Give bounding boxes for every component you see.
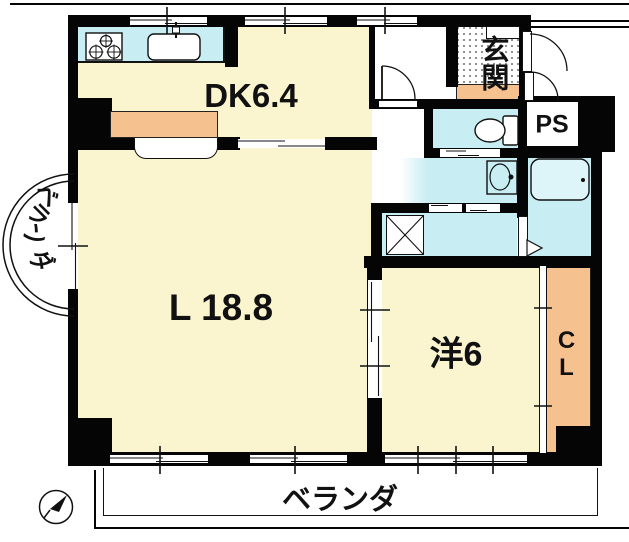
- washing-machine-box: [386, 215, 424, 255]
- room-label-ps: PS: [535, 111, 568, 140]
- window: [110, 455, 208, 463]
- door-arc-entrance: [530, 34, 567, 100]
- window: [130, 17, 207, 25]
- washroom-floor: [428, 158, 517, 205]
- bathroom-door-leaf: [518, 216, 528, 257]
- door-opening: [379, 100, 417, 108]
- balcony-outer-line: [94, 527, 629, 529]
- entrance-door-leaf: [522, 31, 532, 72]
- wall: [369, 24, 375, 102]
- window: [245, 17, 327, 25]
- wall: [371, 203, 382, 263]
- window: [385, 455, 527, 463]
- washroom-doorway-gradient: [400, 158, 428, 205]
- corridor-line: [527, 20, 629, 22]
- sliding-door-opening: [440, 149, 500, 157]
- room-label-entrance: 玄関: [479, 35, 508, 91]
- wall: [364, 256, 602, 268]
- balcony-outer-line: [94, 470, 96, 529]
- window: [68, 203, 78, 289]
- pillar: [68, 418, 112, 462]
- kitchen-counter-orange: [110, 111, 218, 138]
- room-label-closet: CL: [554, 327, 578, 381]
- pillar: [556, 426, 602, 466]
- building-edge-line: [10, 3, 629, 5]
- window: [250, 455, 347, 463]
- balcony-left-label: ベランダ: [20, 184, 58, 274]
- compass-north-icon: [40, 491, 73, 524]
- window: [357, 17, 417, 25]
- sliding-opening: [238, 139, 325, 148]
- room-label-living: L 18.8: [169, 287, 273, 329]
- toilet-room-floor: [432, 107, 519, 148]
- corridor-line: [527, 26, 629, 28]
- room-label-western: 洋6: [430, 327, 483, 376]
- bathroom-floor: [528, 158, 591, 258]
- balcony-bottom-label: ベランダ: [282, 476, 398, 518]
- sliding-door-opening: [368, 280, 382, 398]
- sliding-door-opening: [429, 204, 462, 212]
- room-label-dk: DK6.4: [204, 77, 298, 115]
- wall: [517, 150, 528, 218]
- entrance-door-leaf: [524, 72, 534, 101]
- counter-pass-through: [134, 136, 218, 159]
- wall: [446, 15, 458, 87]
- floorplan-canvas: DK6.4 L 18.8 洋6 PS CL 玄関 ベランダ ベランダ: [0, 0, 629, 542]
- door-arc-hall: [382, 66, 415, 99]
- closet-sliding-door: [539, 266, 547, 453]
- kitchen-counter: [78, 27, 225, 63]
- wall: [325, 137, 377, 150]
- wall: [225, 20, 238, 67]
- wall: [591, 148, 602, 458]
- sliding-door-opening: [466, 204, 500, 212]
